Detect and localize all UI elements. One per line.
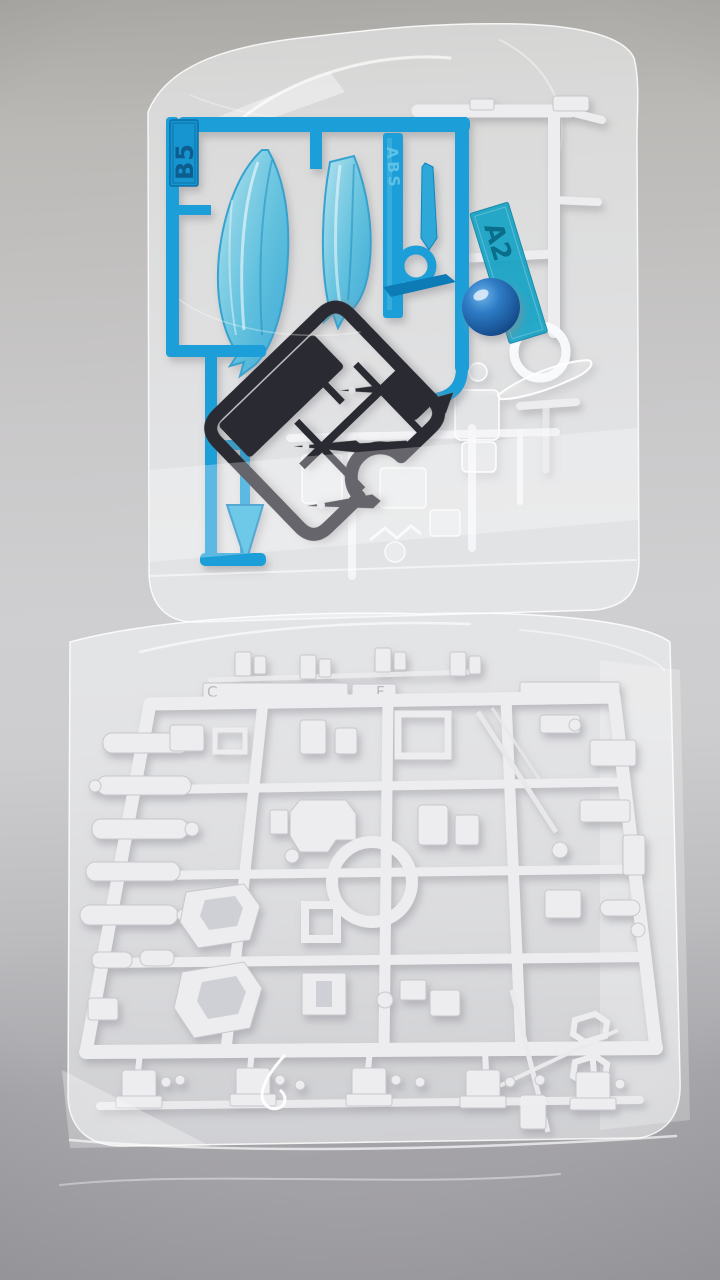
shield-part [174, 962, 262, 1038]
abs-material-marking: ABS [383, 146, 403, 190]
clear-blue-sphere-part [462, 278, 520, 336]
shield-part [180, 884, 260, 948]
top-parts-bag: B5 ABS [0, 0, 720, 660]
runner-tag-b5-label: B5 [171, 143, 199, 180]
h-bracket-part [302, 973, 346, 1015]
surface-reflection [60, 1174, 560, 1185]
runner-tag-b5: B5 [170, 120, 199, 186]
bottom-parts-bag: C F [0, 600, 720, 1280]
clear-joint-part [469, 363, 487, 381]
photo-scene: B5 ABS [0, 0, 720, 1280]
